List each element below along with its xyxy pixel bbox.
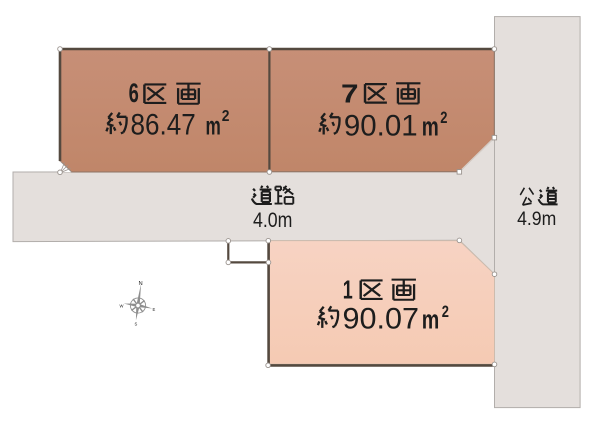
svg-text:m: m xyxy=(206,110,221,140)
svg-text:4.9m: 4.9m xyxy=(517,209,556,230)
svg-text:m: m xyxy=(422,111,439,141)
svg-text:m: m xyxy=(422,304,440,334)
svg-text:4.0m: 4.0m xyxy=(253,207,292,232)
svg-text:86.47: 86.47 xyxy=(131,108,196,141)
svg-text:2: 2 xyxy=(222,108,230,125)
svg-text:W: W xyxy=(120,304,124,309)
svg-text:2: 2 xyxy=(440,108,447,127)
svg-text:S: S xyxy=(135,322,138,327)
svg-text:6: 6 xyxy=(129,78,139,108)
svg-text:7: 7 xyxy=(341,79,359,109)
svg-text:2: 2 xyxy=(442,302,449,321)
svg-text:90.07: 90.07 xyxy=(343,302,420,335)
svg-text:1: 1 xyxy=(343,275,353,305)
svg-text:E: E xyxy=(153,307,156,312)
svg-text:N: N xyxy=(139,281,143,287)
svg-text:90.01: 90.01 xyxy=(344,109,418,142)
